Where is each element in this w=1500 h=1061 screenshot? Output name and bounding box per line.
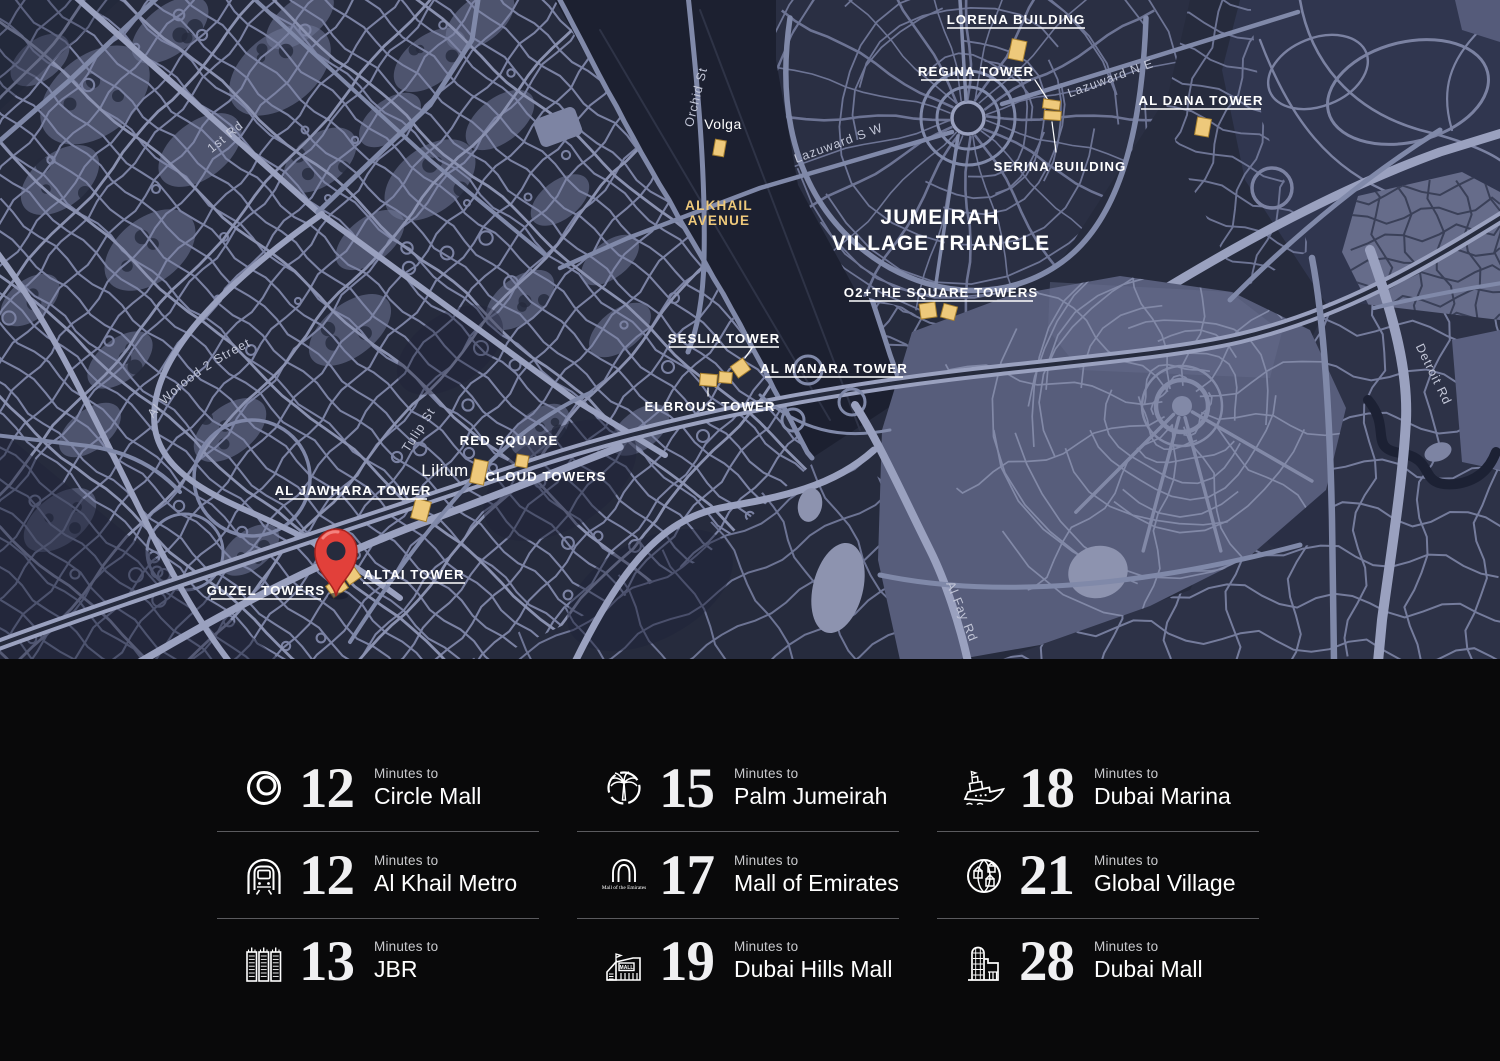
svg-text:MALL: MALL <box>620 965 634 971</box>
svg-text:SESLIA TOWER: SESLIA TOWER <box>668 331 780 346</box>
svg-text:JUMEIRAH: JUMEIRAH <box>880 206 999 229</box>
svg-text:Mall of the Emirates: Mall of the Emirates <box>602 884 646 891</box>
svg-text:Lilium: Lilium <box>421 461 468 480</box>
svg-text:O2+THE SQUARE TOWERS: O2+THE SQUARE TOWERS <box>844 285 1039 300</box>
svg-text:AL MANARA TOWER: AL MANARA TOWER <box>760 361 908 376</box>
svg-text:AL DANA TOWER: AL DANA TOWER <box>1138 93 1263 108</box>
svg-text:ALTAI TOWER: ALTAI TOWER <box>363 567 464 582</box>
svg-text:ELBROUS TOWER: ELBROUS TOWER <box>645 399 776 414</box>
svg-text:CLOUD TOWERS: CLOUD TOWERS <box>485 469 606 484</box>
svg-text:LORENA BUILDING: LORENA BUILDING <box>947 12 1086 27</box>
svg-text:AL JAWHARA TOWER: AL JAWHARA TOWER <box>275 483 432 498</box>
svg-text:VILLAGE TRIANGLE: VILLAGE TRIANGLE <box>832 232 1050 255</box>
svg-text:Volga: Volga <box>704 116 742 132</box>
svg-text:SERINA BUILDING: SERINA BUILDING <box>994 159 1127 174</box>
svg-text:GUZEL TOWERS: GUZEL TOWERS <box>207 583 326 598</box>
svg-text:RED SQUARE: RED SQUARE <box>460 433 559 448</box>
svg-text:AVENUE: AVENUE <box>688 213 750 228</box>
svg-text:REGINA TOWER: REGINA TOWER <box>918 64 1034 79</box>
svg-text:ALKHAIL: ALKHAIL <box>685 198 753 213</box>
